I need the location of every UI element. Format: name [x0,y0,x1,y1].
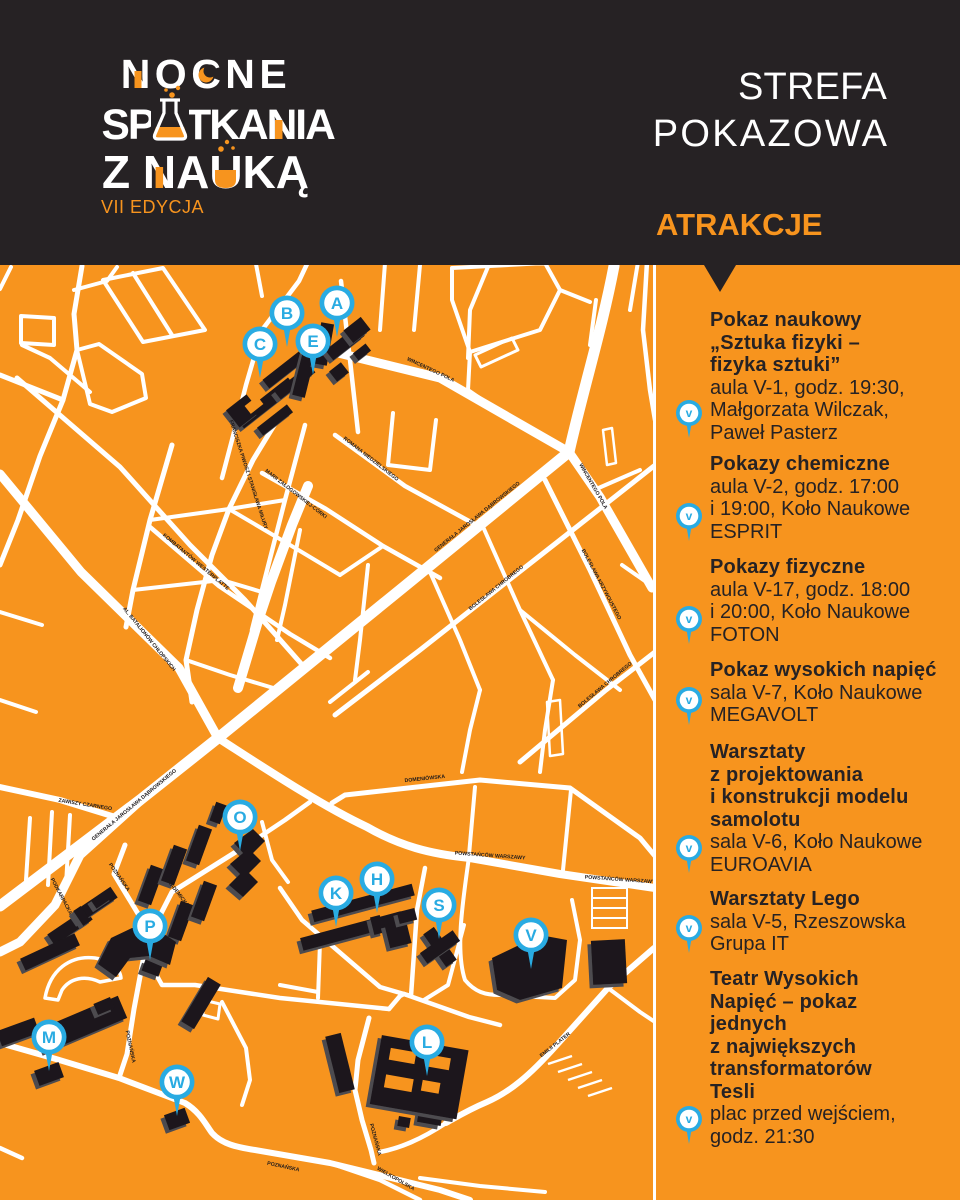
svg-text:v: v [686,509,693,523]
svg-text:L: L [422,1033,432,1052]
svg-text:v: v [686,921,693,935]
svg-text:SPÓTKANIA: SPÓTKANIA [102,100,336,149]
svg-text:A: A [331,294,343,313]
svg-text:B: B [281,304,293,323]
svg-text:P: P [144,917,155,936]
svg-text:S: S [433,896,444,915]
svg-text:W: W [169,1073,186,1092]
svg-text:Z NAUKĄ: Z NAUKĄ [102,146,309,198]
svg-text:H: H [371,870,383,889]
svg-text:v: v [686,841,693,855]
svg-text:v: v [686,612,693,626]
svg-text:VII EDYCJA: VII EDYCJA [101,197,204,217]
svg-text:v: v [686,693,693,707]
svg-text:O: O [233,808,246,827]
svg-text:v: v [686,406,693,420]
svg-text:C: C [254,335,266,354]
svg-text:E: E [307,332,318,351]
svg-text:M: M [42,1028,56,1047]
svg-text:v: v [686,1112,693,1126]
svg-text:V: V [525,926,537,945]
svg-text:K: K [330,884,343,903]
